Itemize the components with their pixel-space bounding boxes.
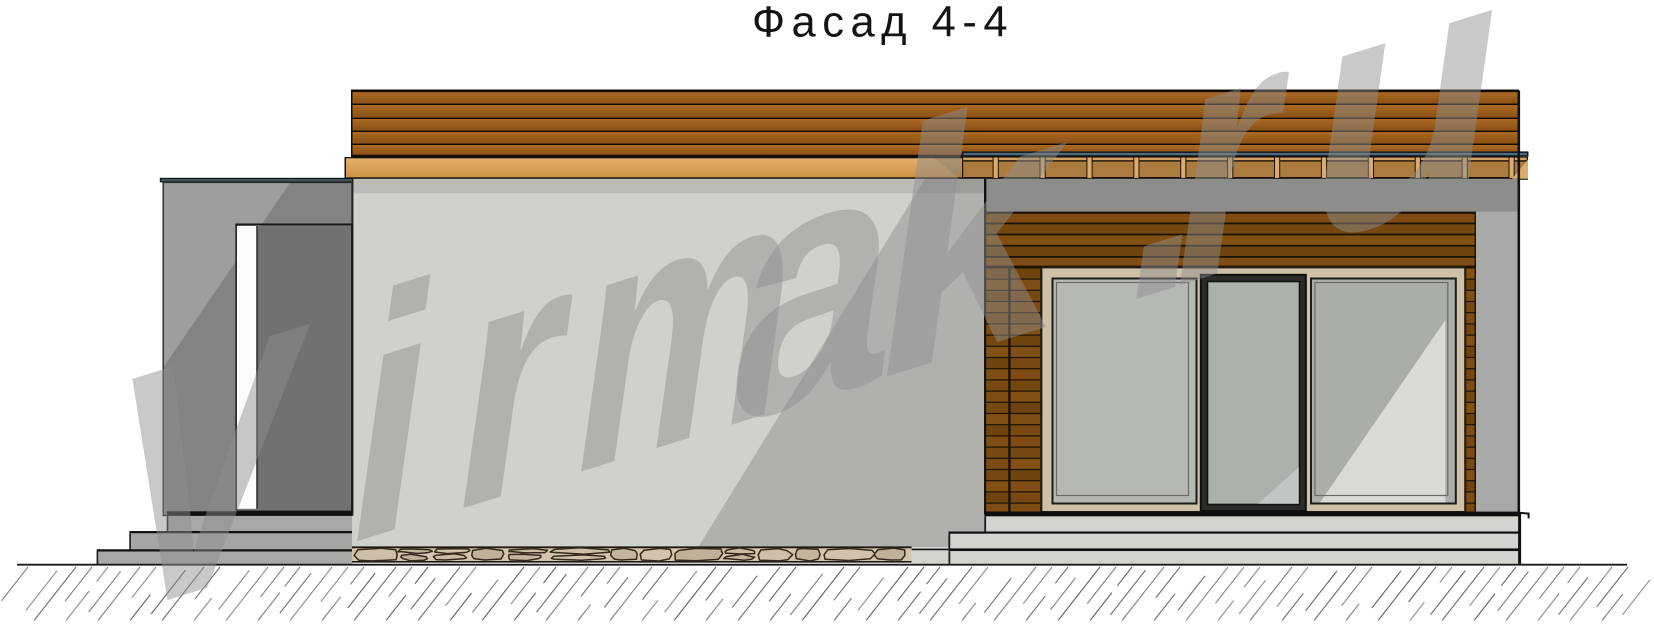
svg-text:Фасад 4-4: Фасад 4-4 xyxy=(752,0,1014,47)
